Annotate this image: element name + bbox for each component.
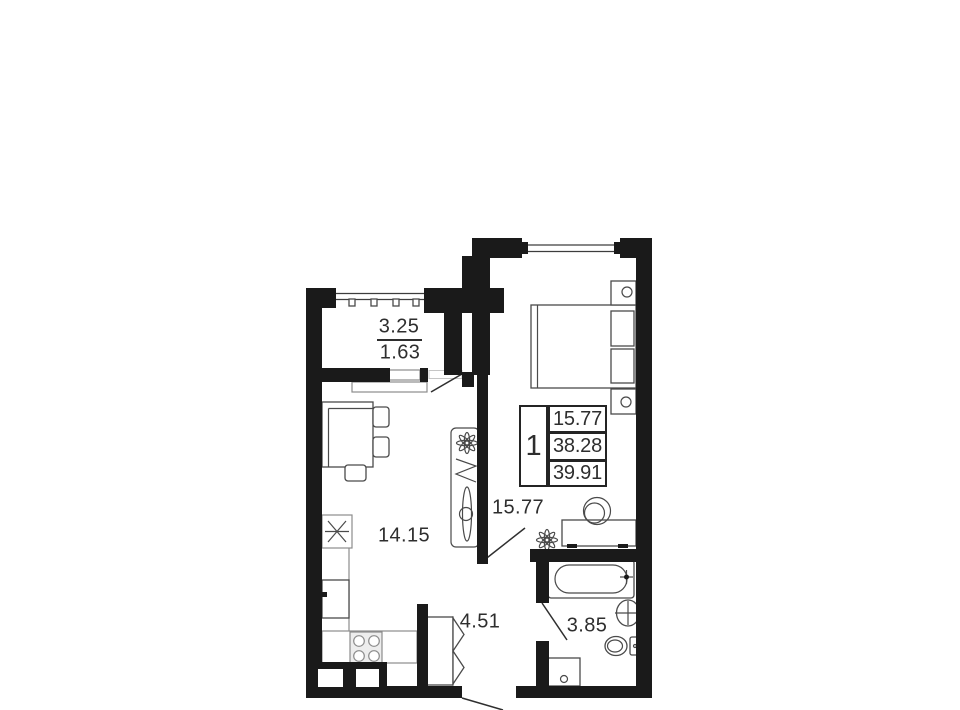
toilet	[605, 637, 640, 656]
plant-flower-living	[537, 530, 558, 551]
living-room-door-leaf	[483, 528, 525, 561]
legend-living-area: 15.77	[548, 405, 607, 433]
kitchen-area-label: 14.15	[378, 525, 430, 548]
vent-shaft-1	[318, 669, 343, 687]
bedroom-window-icon	[522, 242, 620, 254]
kitchen-sink	[322, 515, 352, 548]
wall-bath-left-upper	[536, 562, 549, 603]
wall-bedroom-left	[472, 238, 490, 375]
stove	[350, 632, 382, 664]
wall-top-left-segment	[472, 238, 522, 258]
balcony-area-full: 3.25	[379, 316, 420, 339]
living-room-area-label: 15.77	[492, 497, 544, 520]
chair-right-2	[373, 437, 389, 457]
bathtub	[548, 560, 634, 598]
wall-kitchen-living	[477, 374, 488, 564]
floor-plan: 3.25 1.63 14.15 15.77 4.51 3.85 1 15.77 …	[0, 0, 960, 710]
wall-balcony-separator	[306, 368, 390, 382]
bed	[531, 305, 636, 388]
vent-shaft-2	[356, 669, 379, 687]
wall-bottom-left	[306, 686, 462, 698]
legend-rooms-count: 1	[519, 405, 548, 487]
cabinet-column	[451, 428, 479, 547]
wall-bath-top	[530, 549, 636, 562]
nightstand-top	[611, 281, 636, 305]
entrance-door-leaf	[462, 698, 503, 710]
nightstand-bottom	[611, 389, 636, 414]
legend-area-without-balcony: 38.28	[548, 432, 607, 461]
balcony-fraction-line	[377, 339, 422, 341]
washing-machine	[548, 658, 580, 686]
wall-separator-post	[420, 368, 428, 382]
wall-balcony-right	[444, 313, 462, 375]
wall-hall-kitchen	[417, 604, 428, 686]
chair-right-1	[373, 407, 389, 427]
wall-balcony-top-left	[306, 288, 336, 308]
legend-total-area: 39.91	[548, 460, 607, 487]
refrigerator	[322, 580, 349, 618]
bathroom-area-label: 3.85	[567, 615, 608, 638]
wall-right	[636, 238, 652, 698]
dining-table	[322, 402, 373, 467]
wall-bottom-right	[516, 686, 652, 698]
wall-left	[306, 288, 322, 698]
chair-bottom	[345, 465, 366, 481]
balcony-glazing-icon	[336, 294, 424, 307]
hallway-area-label: 4.51	[460, 611, 501, 634]
balcony-area-reduced: 1.63	[380, 342, 421, 365]
hall-wardrobe	[427, 617, 464, 685]
wall-door-post	[462, 372, 474, 387]
bathroom-door-leaf	[542, 603, 567, 640]
wall-bath-left-lower	[536, 641, 549, 687]
